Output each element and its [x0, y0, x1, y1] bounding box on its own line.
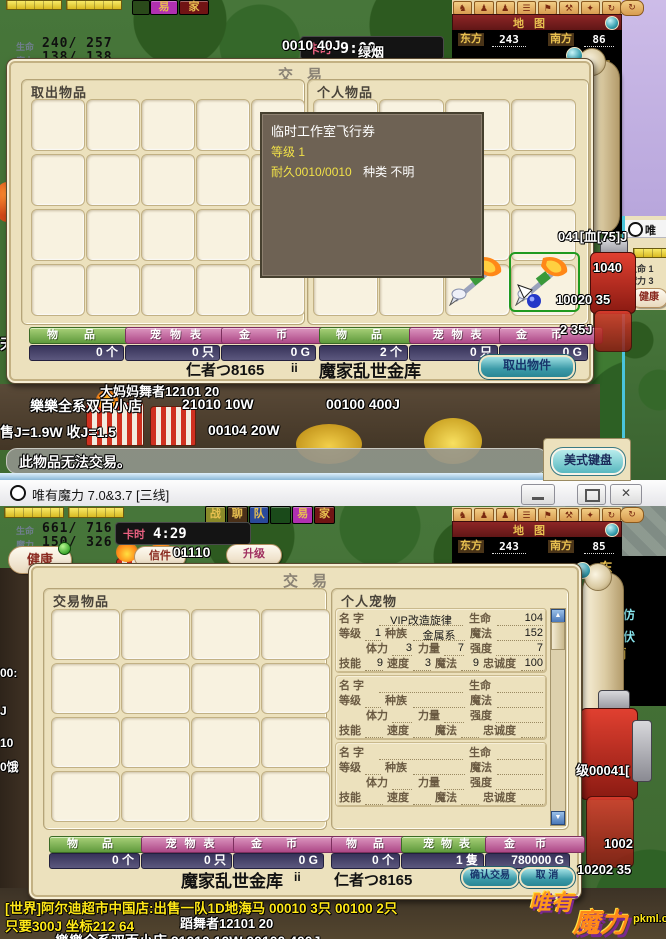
swirl-button[interactable]: ↻: [620, 507, 644, 523]
mp-bar: [68, 507, 124, 518]
partner-name: 魔家乱世金库: [319, 357, 421, 382]
item-slot[interactable]: [141, 264, 195, 316]
pet-skill-value: [365, 724, 383, 738]
pet-speed-label: 速度: [387, 789, 413, 805]
pet-race-label: 种族: [385, 625, 413, 641]
screenshot-root: 易 家 生命 240/ 257 魔力 138/ 138 卡时 9:00 健康 信…: [0, 0, 666, 939]
shop-price: 21010 10W: [182, 396, 254, 412]
pet-entry[interactable]: 名 字 生命 等级 种族 魔法 体力: [335, 742, 547, 807]
items-tab-button[interactable]: 物品: [319, 327, 423, 344]
pet-loyalty-label: 忠诚度: [483, 722, 521, 738]
pet-level-label: 等级: [339, 625, 365, 641]
pet-race-value: [413, 761, 465, 775]
pet-skill-value: [365, 791, 383, 805]
items-tab-button[interactable]: 物品: [49, 836, 155, 853]
item-slot[interactable]: [191, 609, 260, 660]
clock-value: 4:29: [153, 526, 187, 542]
pet-entry[interactable]: 名 字 生命 等级 种族 魔法 体力: [335, 675, 547, 740]
shop-price: 00100 400J: [326, 396, 400, 412]
item-tooltip: 临时工作室飞行券 等级 1 耐久0010/0010 种类 不明: [260, 112, 484, 278]
menu-button-team[interactable]: 队: [249, 506, 270, 524]
pets-tab-button[interactable]: 宠物表: [125, 327, 235, 344]
item-slot[interactable]: [261, 717, 330, 768]
item-slot[interactable]: [31, 154, 85, 206]
pet-name-label: 名 字: [339, 610, 379, 626]
scroll-up-arrow[interactable]: ▲: [551, 609, 565, 623]
item-slot[interactable]: [191, 663, 260, 714]
pet-speed-label: 速度: [387, 655, 413, 671]
item-slot[interactable]: [51, 609, 120, 660]
item-slot[interactable]: [121, 663, 190, 714]
pets-tab-button[interactable]: 宠物表: [141, 836, 247, 853]
floating-text: 041[血[75]J: [558, 226, 627, 245]
tooltip-durability: 耐久0010/0010: [271, 165, 352, 179]
minimap-title: 地图: [453, 15, 605, 31]
pet-magic-label: 魔法: [435, 722, 461, 738]
window-bottom-edge: [0, 473, 556, 480]
trader-name: 仁者つ8165: [186, 359, 264, 380]
floating-text: 级00041[: [576, 760, 629, 779]
trade-window: 交易 交易物品 个人宠物 名 字 VIP改造旋律 生命 104 等级: [28, 563, 582, 900]
menu-button-home[interactable]: 家: [179, 0, 209, 15]
item-slot[interactable]: [141, 99, 195, 151]
item-slot[interactable]: [511, 99, 576, 151]
item-slot[interactable]: [141, 154, 195, 206]
pet-icon[interactable]: ♞: [453, 1, 472, 15]
hp-value: 661/ 716: [42, 521, 113, 536]
edge-text: J: [0, 704, 7, 718]
scroll-thumb[interactable]: [551, 622, 565, 650]
menu-button-trade[interactable]: 易: [292, 506, 313, 524]
item-slot[interactable]: [141, 209, 195, 261]
pet-loyalty-value: [521, 724, 543, 738]
map-south-label: 南方: [548, 33, 574, 46]
pet-name-label: 名 字: [339, 677, 379, 693]
pet-entry[interactable]: 名 字 VIP改造旋律 生命 104 等级 1 种族 金属系 魔法 152: [335, 608, 547, 673]
mouse-cursor: [517, 284, 543, 315]
edge-text: 10: [0, 736, 13, 750]
side-hp-bar: [633, 248, 666, 258]
pet-hp-value: [497, 679, 543, 693]
pet-name-label: 名 字: [339, 744, 379, 760]
pet-magic-label: 魔法: [435, 655, 461, 671]
map-south-value: 86: [584, 34, 614, 47]
hud-menu: 战 聊 队 易 家: [205, 506, 335, 523]
item-slot[interactable]: [31, 209, 85, 261]
trader-name: 魔家乱世金库: [181, 867, 283, 892]
pet-level-label: 等级: [339, 692, 365, 708]
pet-mp-value: [497, 694, 543, 708]
pet-skill-label: 技能: [339, 655, 365, 671]
top-game-client: 易 家 生命 240/ 257 魔力 138/ 138 卡时 9:00 健康 信…: [0, 0, 666, 480]
floating-text: 2 35J: [560, 322, 593, 337]
item-slot[interactable]: [51, 771, 120, 822]
floating-text: 10020 35: [556, 292, 610, 307]
robot-sprite-arm: [632, 720, 652, 782]
pet-strength-value: [444, 776, 464, 790]
pet-race-value: [413, 694, 465, 708]
pet-hp-value: [497, 746, 543, 760]
bag-icon[interactable]: ⚑: [538, 1, 557, 15]
partner-name: 仁者つ8165: [334, 869, 412, 890]
pet-stamina-label: 体力: [366, 707, 392, 723]
item-slot[interactable]: [51, 717, 120, 768]
minimize-icon: [532, 497, 544, 500]
pet-hp-value: 104: [497, 612, 543, 626]
menu-button-trade[interactable]: 易: [150, 0, 178, 15]
robot-sprite-legs: [586, 796, 634, 868]
close-button[interactable]: ✕: [610, 484, 642, 505]
side-window-title: 唯: [645, 222, 656, 238]
bag-icon[interactable]: ⚑: [538, 508, 557, 522]
pet-magic-value: 9: [461, 657, 479, 671]
trade-item-grid: [51, 609, 328, 822]
cg-app-icon: [628, 222, 643, 237]
team-icon[interactable]: ♟: [474, 1, 493, 15]
pet-stamina-value: [392, 776, 412, 790]
pet-icon[interactable]: ♞: [453, 508, 472, 522]
tooltip-kind: 种类 不明: [363, 165, 414, 179]
pet-skill-label: 技能: [339, 789, 365, 805]
pet-speed-value: 3: [413, 657, 431, 671]
item-slot[interactable]: [51, 663, 120, 714]
pets-tab-button[interactable]: 宠物表: [409, 327, 513, 344]
watermark-url: pkml.cn: [633, 913, 666, 925]
minimap-minimize-icon[interactable]: [605, 523, 619, 537]
pet-strength-label: 力量: [418, 640, 444, 656]
item-slot[interactable]: [261, 771, 330, 822]
game-clock: 卡时 4:29: [115, 522, 251, 545]
hp-bar: [6, 0, 62, 10]
pet-hp-label: 生命: [463, 744, 497, 760]
pet-loyalty-value: [521, 791, 543, 805]
trade-items-title: 交易物品: [53, 591, 109, 610]
exchange-rates: 售J=1.9W 收J=1.5: [0, 422, 116, 442]
pet-stamina-label: 体力: [366, 774, 392, 790]
items-count: 0 个: [49, 853, 140, 869]
system-message-bar: 此物品无法交易。: [6, 448, 548, 474]
hp-label: 生命: [16, 40, 34, 53]
pet-level-value: 1: [365, 627, 381, 641]
items-count: 0 个: [29, 345, 124, 361]
pet-stamina-label: 体力: [366, 640, 392, 656]
pet-mp-label: 魔法: [465, 692, 497, 708]
pet-toughness-value: [496, 709, 543, 723]
pet-toughness-label: 强度: [470, 707, 496, 723]
floating-price: 0010 40J: [282, 37, 340, 53]
ime-indicator[interactable]: 美式键盘: [551, 448, 625, 475]
card-icon[interactable]: ☰: [517, 508, 536, 522]
ime-bar[interactable]: 美式键盘: [543, 438, 631, 481]
minimap-minimize-icon[interactable]: [605, 16, 619, 30]
mp-bar: [66, 0, 122, 10]
item-slot[interactable]: [86, 264, 140, 316]
pet-race-label: 种族: [385, 692, 413, 708]
pet-strength-label: 力量: [418, 774, 444, 790]
clock-label: 卡时: [123, 526, 145, 542]
desktop-background: [621, 0, 666, 216]
item-slot[interactable]: [261, 663, 330, 714]
confirm-trade-button[interactable]: 确认交易: [461, 867, 519, 888]
scroll-down-arrow[interactable]: ▼: [551, 811, 565, 825]
pet-toughness-value: 7: [496, 642, 543, 656]
item-slot[interactable]: [31, 264, 85, 316]
pet-strength-value: 7: [444, 642, 464, 656]
takeout-button[interactable]: 取出物件: [479, 355, 575, 379]
map-east-label: 东方: [458, 540, 484, 553]
chat-line-white: 蹈舞者12101 20: [180, 913, 273, 932]
pet-hp-label: 生命: [463, 677, 497, 693]
tooltip-item-level: 等级 1: [271, 143, 473, 160]
floating-coords: 01110: [173, 544, 210, 560]
pet-mp-value: [497, 761, 543, 775]
maximize-button[interactable]: [577, 484, 606, 505]
pet-name-value: [379, 746, 463, 760]
item-slot[interactable]: [191, 771, 260, 822]
hp-bar: [4, 507, 64, 518]
pet-race-label: 种族: [385, 759, 413, 775]
craft-icon[interactable]: ⚒: [559, 1, 578, 15]
pet-toughness-label: 强度: [470, 774, 496, 790]
pet-list-scrollbar[interactable]: ▲ ▼: [550, 608, 566, 826]
watermark-text: 魔力: [573, 901, 627, 939]
card-icon[interactable]: ☰: [517, 1, 536, 15]
map-east-value: 243: [492, 541, 526, 554]
minimap-title: 地图: [453, 522, 605, 538]
floating-text: 1002: [604, 836, 633, 851]
menu-button[interactable]: [270, 506, 291, 524]
pet-race-value: 金属系: [413, 627, 465, 641]
map-south-value: 85: [584, 541, 614, 554]
map-east-value: 243: [492, 34, 526, 47]
shop-name: 樂樂全系双百小店: [30, 396, 142, 416]
system-icon[interactable]: ↻: [602, 508, 621, 522]
pet-strength-value: [444, 709, 464, 723]
edge-text: 0饿: [0, 758, 19, 775]
map-south-label: 南方: [548, 540, 574, 553]
gold-tab-button[interactable]: 金币: [485, 836, 585, 853]
item-slot[interactable]: [191, 717, 260, 768]
item-slot[interactable]: [261, 609, 330, 660]
pet-speed-label: 速度: [387, 722, 413, 738]
gold-tab-button[interactable]: 金币: [233, 836, 339, 853]
edge-text: 00:: [0, 666, 17, 680]
pet-skill-value: 9: [365, 657, 383, 671]
window-title: 唯有魔力 7.0&3.7 [三线]: [32, 485, 169, 504]
system-icon[interactable]: ↻: [602, 1, 621, 15]
maximize-icon: [585, 489, 600, 502]
bottom-game-client: 唯有魔力 7.0&3.7 [三线] ✕ 战 聊 队 易 家: [0, 480, 666, 939]
market-stall: [150, 406, 196, 446]
pet-magic-value: [461, 724, 479, 738]
items-tab-button[interactable]: 物品: [29, 327, 139, 344]
side-window-titlebar[interactable]: 唯: [625, 220, 666, 238]
pet-magic-label: 魔法: [435, 789, 461, 805]
pet-mp-label: 魔法: [465, 759, 497, 775]
gold-tab-button[interactable]: 金币: [221, 327, 331, 344]
emote-icon[interactable]: ✦: [581, 1, 600, 15]
watermark-text: 唯有: [529, 885, 573, 917]
system-message-text: 此物品无法交易。: [19, 452, 131, 472]
names-separator: ii: [291, 361, 298, 375]
robot-sprite-body: [580, 708, 638, 800]
map-east-label: 东方: [458, 33, 484, 46]
shop-price: 00104 20W: [208, 422, 280, 438]
item-slot[interactable]: [196, 209, 250, 261]
team-icon[interactable]: ♟: [474, 508, 493, 522]
item-slot[interactable]: [196, 99, 250, 151]
item-slot[interactable]: [196, 154, 250, 206]
items-count: 0 个: [331, 853, 400, 869]
robot-sprite-legs: [594, 310, 632, 352]
pet-speed-value: [413, 791, 431, 805]
item-slot[interactable]: [121, 771, 190, 822]
cg-app-icon: [10, 485, 26, 501]
item-slot[interactable]: [511, 154, 576, 206]
floating-text: 1040: [593, 260, 622, 275]
pet-speed-value: [413, 724, 431, 738]
pet-level-value: [365, 761, 381, 775]
pet-list: 名 字 VIP改造旋律 生命 104 等级 1 种族 金属系 魔法 152: [335, 608, 547, 824]
craft-icon[interactable]: ⚒: [559, 508, 578, 522]
pet-name-value: VIP改造旋律: [379, 612, 463, 626]
swirl-button[interactable]: ↻: [620, 0, 644, 16]
item-slot[interactable]: [86, 154, 140, 206]
pet-stamina-value: 3: [392, 642, 412, 656]
pet-strength-label: 力量: [418, 707, 444, 723]
watermark-logo: 唯有 魔力 pkml.cn: [515, 885, 666, 939]
item-slot[interactable]: [196, 264, 250, 316]
friends-icon[interactable]: ♟: [496, 1, 515, 15]
hp-label: 生命: [16, 524, 34, 537]
os-titlebar[interactable]: 唯有魔力 7.0&3.7 [三线] ✕: [0, 480, 666, 507]
pet-stamina-value: [392, 709, 412, 723]
tooltip-item-name: 临时工作室飞行券: [271, 121, 473, 140]
pet-level-value: [365, 694, 381, 708]
health-status-dot: [58, 542, 71, 555]
hp-value: 240/ 257: [42, 36, 113, 51]
pet-loyalty-value: 100: [521, 657, 543, 671]
item-slot[interactable]: [121, 717, 190, 768]
pet-skill-label: 技能: [339, 722, 365, 738]
minimize-button[interactable]: [521, 484, 555, 505]
clipped-shop-line: 樂樂全系双百小店 21010 10W 00100 400J: [55, 931, 320, 939]
pet-loyalty-label: 忠诚度: [483, 789, 521, 805]
emote-icon[interactable]: ✦: [581, 508, 600, 522]
menu-button-home[interactable]: 家: [314, 506, 335, 524]
pet-toughness-value: [496, 776, 543, 790]
pet-mp-value: 152: [497, 627, 543, 641]
pet-loyalty-label: 忠诚度: [483, 655, 521, 671]
item-slot[interactable]: [31, 99, 85, 151]
pet-name-value: [379, 679, 463, 693]
item-slot[interactable]: [86, 209, 140, 261]
friends-icon[interactable]: ♟: [496, 508, 515, 522]
menu-button[interactable]: [132, 0, 150, 15]
item-slot[interactable]: [86, 99, 140, 151]
floating-text: 10202 35: [577, 862, 631, 877]
pet-magic-value: [461, 791, 479, 805]
item-slot[interactable]: [121, 609, 190, 660]
pet-level-label: 等级: [339, 759, 365, 775]
names-separator: ii: [294, 870, 301, 884]
pet-toughness-label: 强度: [470, 640, 496, 656]
pet-hp-label: 生命: [463, 610, 497, 626]
pet-mp-label: 魔法: [465, 625, 497, 641]
